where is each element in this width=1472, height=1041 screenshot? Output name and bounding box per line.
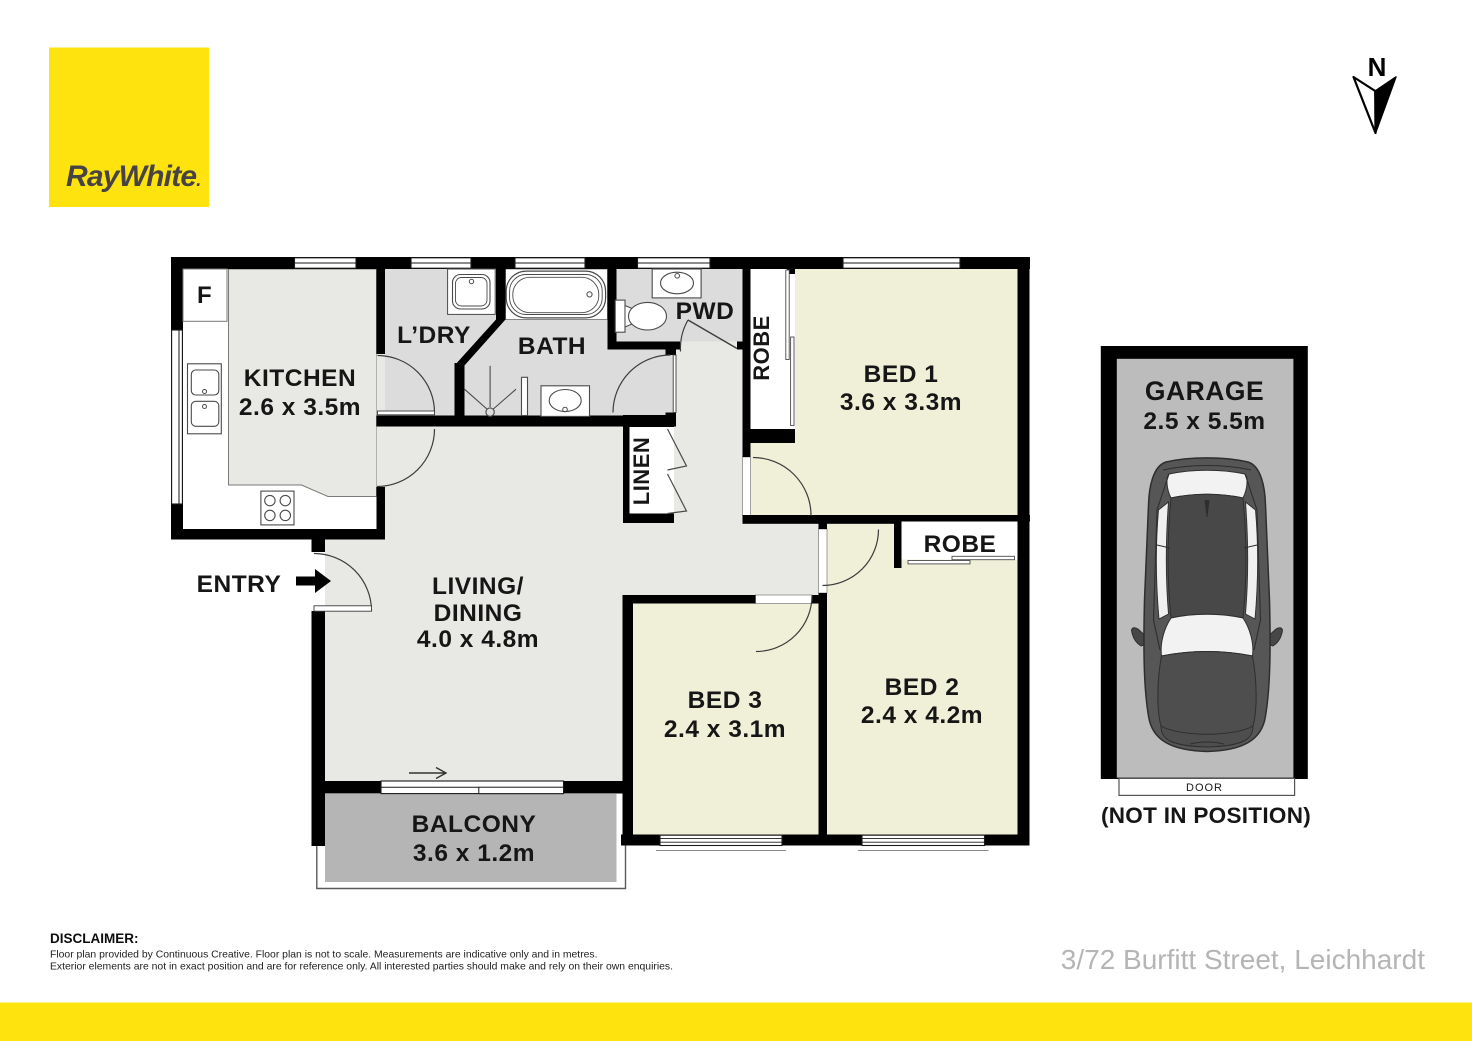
svg-text:2.5 x 5.5m: 2.5 x 5.5m [1143,408,1265,435]
svg-text:PWD: PWD [676,298,735,325]
svg-text:ROBE: ROBE [749,315,774,381]
svg-text:KITCHEN: KITCHEN [244,365,356,392]
svg-text:BED 2: BED 2 [885,674,960,701]
svg-text:GARAGE: GARAGE [1145,376,1264,406]
svg-text:RayWhite.: RayWhite. [66,160,201,193]
svg-text:F: F [197,282,212,309]
svg-text:Exterior elements are not in e: Exterior elements are not in exact posit… [50,962,673,973]
svg-text:BATH: BATH [518,333,586,360]
svg-text:DISCLAIMER:: DISCLAIMER: [50,931,139,946]
svg-text:L’DRY: L’DRY [397,322,471,349]
svg-text:3.6 x 3.3m: 3.6 x 3.3m [840,389,962,416]
svg-text:2.4 x 3.1m: 2.4 x 3.1m [664,716,786,743]
svg-text:4.0 x 4.8m: 4.0 x 4.8m [417,626,539,653]
svg-text:LIVING/: LIVING/ [432,573,524,600]
svg-text:BALCONY: BALCONY [412,811,537,838]
svg-text:BED 1: BED 1 [864,361,939,388]
svg-text:DINING: DINING [434,600,523,627]
svg-text:Floor plan provided by Continu: Floor plan provided by Continuous Creati… [50,950,598,961]
svg-text:ROBE: ROBE [924,531,997,558]
svg-text:BED 3: BED 3 [688,687,763,714]
svg-text:LINEN: LINEN [629,437,654,506]
svg-text:(NOT IN POSITION): (NOT IN POSITION) [1101,803,1311,828]
svg-text:2.4 x 4.2m: 2.4 x 4.2m [861,702,983,729]
svg-text:DOOR: DOOR [1186,782,1223,794]
svg-text:N: N [1368,52,1387,82]
svg-text:2.6 x 3.5m: 2.6 x 3.5m [239,394,361,421]
svg-text:3/72 Burfitt Street, Leichhard: 3/72 Burfitt Street, Leichhardt [1061,944,1425,975]
svg-text:3.6 x 1.2m: 3.6 x 1.2m [413,840,535,867]
svg-text:ENTRY: ENTRY [197,571,282,598]
